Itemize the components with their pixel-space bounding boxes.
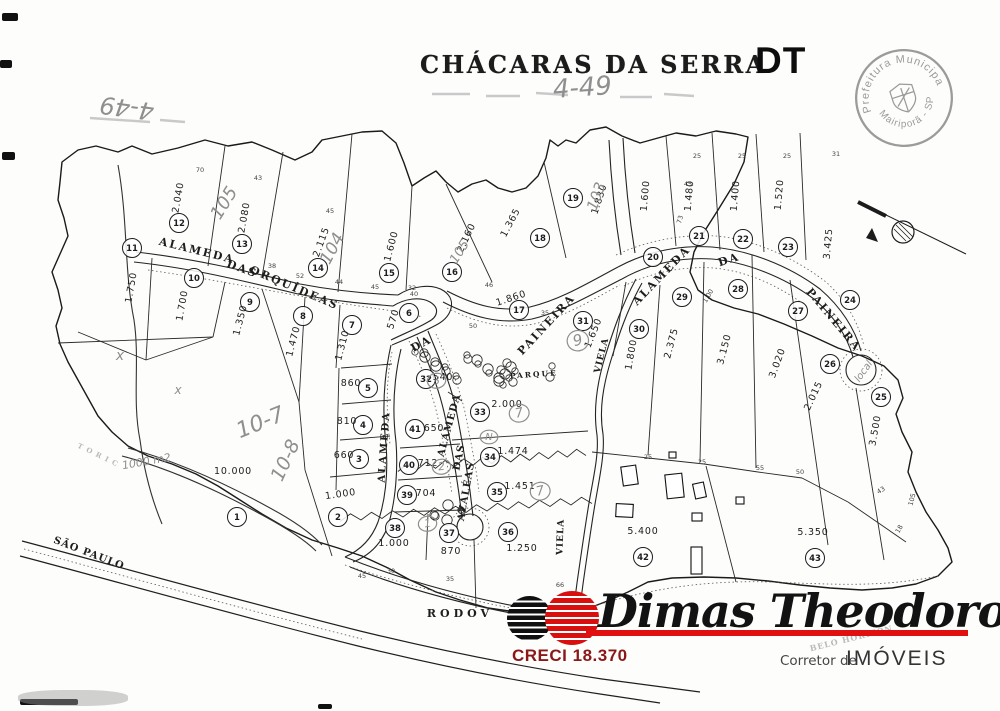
- lot-area-label: 2.015: [802, 379, 825, 412]
- edge-dimension: 45: [326, 207, 334, 215]
- edge-dimension: 73: [675, 214, 685, 224]
- building-footprint: [693, 482, 707, 499]
- handwritten-note: 10-7: [233, 402, 289, 444]
- lot-number: 3: [356, 455, 362, 465]
- lot-area-label: 1.600: [382, 230, 401, 263]
- lot-number: 38: [389, 524, 401, 534]
- lot-number: 41: [409, 425, 421, 435]
- lot-area-label: 1.000: [378, 538, 409, 549]
- building-footprint: [669, 452, 676, 458]
- edge-dimension: 43: [875, 485, 886, 496]
- edge-dimension: 30: [387, 567, 395, 575]
- stamp-coat-of-arms: [889, 81, 920, 116]
- lot-number: 20: [647, 253, 659, 263]
- edge-dimension: 55: [756, 464, 764, 472]
- lot-number: 36: [502, 528, 514, 538]
- tree-icon: [500, 382, 506, 388]
- lot-number: 40: [403, 461, 415, 471]
- edge-dimension: 105: [907, 492, 918, 506]
- edge-dimension: 18: [894, 523, 905, 534]
- lot-area-label: 1.474: [497, 446, 528, 457]
- svg-text:Mairiporã - SP: Mairiporã - SP: [875, 92, 944, 138]
- lot-number: 4: [360, 421, 366, 431]
- lot-area-label: 3.425: [822, 228, 836, 260]
- lot-number: 11: [126, 244, 138, 254]
- lot-area-label: 704: [416, 488, 437, 499]
- scan-artifact: [2, 152, 15, 160]
- handwritten-note: x: [173, 383, 182, 397]
- scan-artifact: [0, 60, 12, 68]
- stamp-arc-bottom: Mairiporã - SP: [875, 92, 944, 138]
- lot-number: 10: [188, 274, 200, 284]
- handwritten-note: 7: [535, 483, 547, 500]
- street-label: RODOV: [427, 607, 493, 620]
- edge-dimension: 31: [832, 150, 840, 158]
- lot-area-label: 1.470: [284, 325, 303, 358]
- scan-smudge: [18, 690, 128, 706]
- handwritten-note: 105: [206, 183, 242, 223]
- tree-icon: [464, 355, 472, 363]
- creci-number: CRECI 18.370: [512, 646, 628, 666]
- subdivision-perimeter: [52, 127, 952, 614]
- edge-dimension: 35: [446, 575, 454, 583]
- building-footprint: [692, 513, 702, 521]
- lot-area-label: 3.150: [715, 333, 734, 366]
- handwritten-note: 7: [514, 405, 526, 422]
- edge-dimension: 25: [644, 453, 652, 461]
- lot-number: 15: [383, 269, 395, 279]
- lot-number: 37: [443, 529, 455, 539]
- lot-number: 5: [365, 384, 371, 394]
- lot-number: 27: [792, 307, 804, 317]
- edge-dimension: 25: [738, 152, 746, 160]
- edge-dimension: 66: [556, 581, 564, 589]
- lot-area-label: 860: [341, 378, 362, 389]
- street-label: ALAMEDA: [376, 411, 392, 484]
- edge-dimension: 43: [254, 174, 262, 182]
- edge-dimension: 40: [410, 290, 418, 298]
- lot-number: 21: [693, 232, 705, 242]
- logo-sphere-red-icon: [545, 591, 599, 645]
- edge-dimension: 25: [698, 458, 706, 466]
- street-label: T O R I C: [76, 441, 120, 469]
- lot-number: 25: [875, 393, 887, 403]
- lot-area-label: 1.600: [639, 180, 653, 212]
- edge-dimension: 45: [371, 283, 379, 291]
- lot-area-label: 1.480: [683, 180, 697, 212]
- handwritten-note: 9: [571, 330, 585, 350]
- lot-number: 18: [534, 234, 546, 244]
- creek-lines: [118, 165, 322, 551]
- lot-area-label: 1.520: [773, 179, 787, 211]
- handwritten-note: x: [115, 348, 125, 364]
- tree-icon: [472, 355, 482, 365]
- building-footprint: [621, 465, 638, 486]
- lot-area-label: 5.350: [797, 527, 828, 538]
- lot-area-label: 2.040: [170, 181, 186, 214]
- lot-number: 31: [577, 317, 589, 327]
- tree-icon: [443, 500, 453, 510]
- lot-area-label: 1.400: [729, 180, 743, 212]
- lot-number: 1: [234, 513, 240, 523]
- dt-mark: DT: [755, 40, 806, 82]
- lot-area-label: 1.700: [174, 289, 190, 322]
- lot-number: 14: [312, 264, 324, 274]
- lot-number: 17: [513, 306, 525, 316]
- building-footprint: [691, 547, 702, 574]
- edge-dimension: 44: [335, 278, 343, 286]
- street-label: DA: [716, 250, 741, 269]
- lot-number: 24: [844, 296, 856, 306]
- building-footprint: [616, 504, 634, 518]
- scan-artifact: [2, 13, 18, 21]
- edge-dimension: 50: [469, 322, 477, 330]
- lot-area-label: 660: [334, 450, 355, 461]
- lot-area-label: 1.750: [123, 271, 139, 304]
- role-label: IMÓVEIS: [846, 647, 948, 671]
- lot-area-label: 1.310: [333, 329, 352, 362]
- street-label: VIELA: [555, 519, 566, 557]
- lot-area-label: 1.350: [231, 304, 250, 337]
- edge-dimension: 52: [296, 272, 304, 280]
- lot-number: 42: [637, 553, 649, 563]
- lot-number: 26: [824, 360, 836, 370]
- lot-number: 29: [676, 293, 688, 303]
- handwritten-note: 10-8: [266, 436, 304, 484]
- lot-area-label: 1.800: [623, 338, 639, 371]
- lot-number: 32: [420, 375, 432, 385]
- page-title: CHÁCARAS DA SERRA: [420, 50, 720, 79]
- lot-area-label: 2.375: [662, 327, 681, 360]
- edge-dimension: 46: [485, 281, 493, 289]
- edge-dimension: 70: [196, 166, 204, 174]
- edge-dimension: 25: [783, 152, 791, 160]
- lot-area-label: 3.020: [767, 347, 788, 380]
- handwritten-note: N: [485, 432, 493, 443]
- lot-number: 28: [732, 285, 744, 295]
- lot-area-label: 570: [385, 308, 402, 331]
- lot-area-label: 1.000: [324, 487, 356, 502]
- lot-number: 8: [300, 312, 306, 322]
- lot-number: 43: [809, 554, 821, 564]
- scanned-plat-map-page: 7043454525252531734632385244454025255550…: [0, 0, 1000, 711]
- lot-number: 2: [335, 513, 341, 523]
- lot-area-label: 5.400: [627, 526, 658, 537]
- lot-number: 22: [737, 235, 749, 245]
- lot-number: 12: [173, 219, 185, 229]
- edge-dimension: 25: [693, 152, 701, 160]
- lot-area-label: 10.000: [214, 466, 252, 477]
- handwritten-note: 2: [437, 460, 446, 474]
- lot-area-label: 1.250: [506, 543, 537, 554]
- lot-number: 39: [401, 491, 413, 501]
- lot-number: 35: [491, 488, 503, 498]
- lot-area-label: 2.080: [236, 201, 252, 234]
- edge-dimension: 38: [268, 262, 276, 270]
- lot-markers: 110.00021.000366048105860657071.31081.47…: [123, 179, 891, 568]
- tree-icon: [431, 358, 439, 366]
- street-label: SÃO PAULO: [52, 534, 126, 572]
- handwritten-note: 103: [583, 180, 610, 213]
- edge-dimension: 45: [358, 572, 366, 580]
- handwritten-note: 1: [423, 517, 432, 531]
- lot-number: 30: [633, 325, 645, 335]
- north-arrow-icon: [858, 202, 966, 254]
- lot-number: 13: [236, 240, 248, 250]
- edge-dimension: 50: [796, 468, 804, 476]
- lot-number: 33: [474, 408, 486, 418]
- lot-number: 34: [484, 453, 496, 463]
- tree-icon: [494, 376, 504, 386]
- street-label: PARQUE: [510, 368, 558, 380]
- brand-red-bar: [586, 630, 968, 636]
- lot-number: 6: [406, 309, 412, 319]
- lot-area-label: 810: [337, 416, 358, 427]
- lot-area-label: 870: [441, 546, 462, 557]
- street-label: PAINEIRA: [515, 292, 578, 358]
- lot-area-label: 712: [418, 458, 439, 469]
- tree-icon: [453, 376, 461, 384]
- lot-area-label: 1.365: [499, 206, 523, 239]
- building-footprint: [665, 473, 684, 499]
- scan-artifact: [318, 704, 332, 709]
- lot-number: 19: [567, 194, 579, 204]
- tree-icon: [483, 364, 493, 374]
- lot-number: 23: [782, 243, 794, 253]
- tree-icon: [503, 359, 511, 367]
- building-footprint: [736, 497, 744, 504]
- lot-area-label: 650: [424, 423, 445, 434]
- lot-number: 7: [349, 321, 355, 331]
- lot-area-label: 3.500: [867, 414, 883, 447]
- lot-number: 16: [446, 268, 458, 278]
